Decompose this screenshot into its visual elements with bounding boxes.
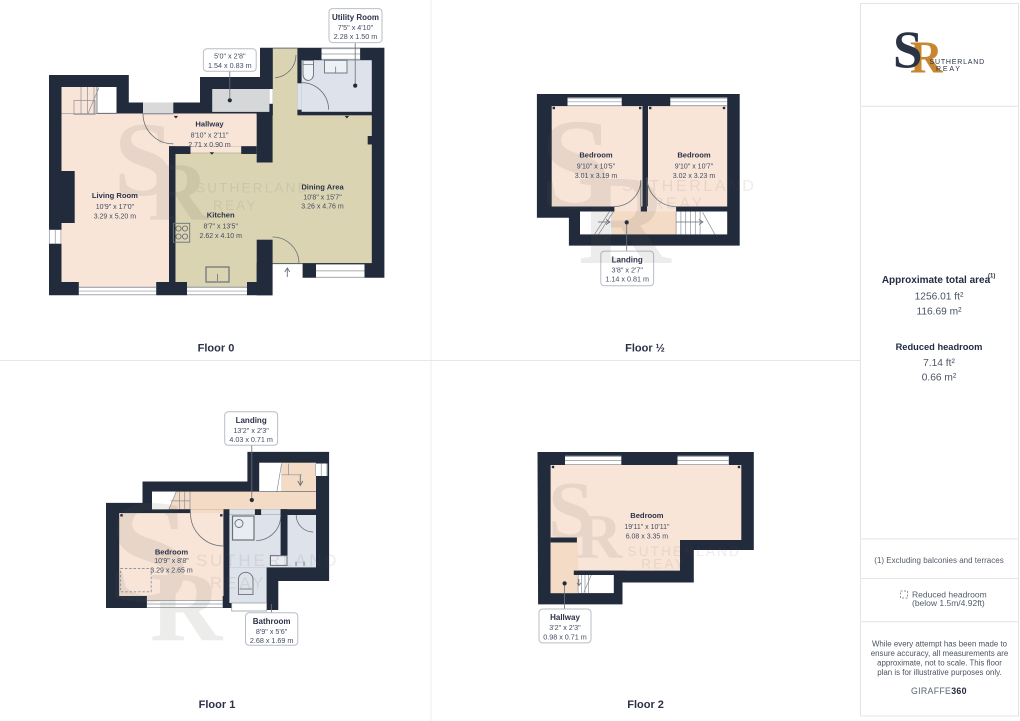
svg-text:8'9" x 5'6": 8'9" x 5'6" <box>256 627 288 636</box>
svg-text:approximate, not to scale. Thi: approximate, not to scale. This floor <box>877 659 1002 668</box>
svg-text:SUTHERLAND: SUTHERLAND <box>196 551 339 570</box>
svg-text:8'7" x 13'5": 8'7" x 13'5" <box>203 224 238 231</box>
svg-text:0.98 x 0.71 m: 0.98 x 0.71 m <box>543 632 587 641</box>
svg-text:Bedroom: Bedroom <box>677 150 711 159</box>
svg-text:Dining Area: Dining Area <box>301 183 344 192</box>
svg-text:9'10" x 10'7": 9'10" x 10'7" <box>675 164 714 171</box>
svg-text:ensure accuracy, all measureme: ensure accuracy, all measurements are <box>871 649 1009 658</box>
svg-text:5'0" x 2'8": 5'0" x 2'8" <box>214 52 246 61</box>
svg-text:3'2" x 2'3": 3'2" x 2'3" <box>549 623 581 632</box>
svg-text:4.03 x 0.71 m: 4.03 x 0.71 m <box>229 435 273 444</box>
svg-text:Landing: Landing <box>236 416 267 425</box>
svg-text:Bedroom: Bedroom <box>630 511 664 520</box>
svg-text:116.69 m²: 116.69 m² <box>916 307 962 318</box>
svg-text:3.02 x 3.23 m: 3.02 x 3.23 m <box>673 173 716 180</box>
svg-text:Floor ½: Floor ½ <box>625 343 665 355</box>
svg-text:3.26 x 4.76 m: 3.26 x 4.76 m <box>301 204 344 211</box>
svg-text:Kitchen: Kitchen <box>207 210 235 219</box>
svg-text:9'10" x 10'5": 9'10" x 10'5" <box>577 164 616 171</box>
svg-text:S: S <box>893 22 922 80</box>
svg-text:Reduced headroom: Reduced headroom <box>896 342 983 352</box>
svg-text:REAY: REAY <box>936 66 962 73</box>
svg-text:Living Room: Living Room <box>92 191 138 200</box>
svg-text:(1) Excluding balconies and te: (1) Excluding balconies and terraces <box>874 556 1003 565</box>
svg-text:(below 1.5m/4.92ft): (below 1.5m/4.92ft) <box>912 598 985 608</box>
svg-text:13'2" x 2'3": 13'2" x 2'3" <box>233 426 269 435</box>
svg-text:Floor 0: Floor 0 <box>198 343 235 355</box>
svg-text:SUTHERLAND: SUTHERLAND <box>196 181 310 196</box>
svg-text:REAY: REAY <box>652 196 705 213</box>
svg-text:2.68 x 1.69 m: 2.68 x 1.69 m <box>250 636 294 645</box>
svg-text:6.08 x 3.35 m: 6.08 x 3.35 m <box>626 534 669 541</box>
svg-text:Hallway: Hallway <box>195 119 224 128</box>
svg-text:Floor 1: Floor 1 <box>199 699 236 711</box>
svg-text:1256.01 ft²: 1256.01 ft² <box>915 292 964 303</box>
svg-text:2.71 x 0.90 m: 2.71 x 0.90 m <box>188 142 231 149</box>
svg-text:10'9" x 8'8": 10'9" x 8'8" <box>154 558 189 565</box>
svg-text:19'11" x 10'11": 19'11" x 10'11" <box>624 524 670 531</box>
svg-text:GIRAFFE360: GIRAFFE360 <box>911 686 967 696</box>
svg-text:2.62 x 4.10 m: 2.62 x 4.10 m <box>199 233 242 240</box>
svg-text:Utility Room: Utility Room <box>332 13 379 22</box>
svg-text:(1): (1) <box>988 274 995 280</box>
svg-text:Hallway: Hallway <box>550 613 580 622</box>
svg-text:0.66 m²: 0.66 m² <box>922 373 957 384</box>
svg-text:Bedroom: Bedroom <box>579 150 613 159</box>
svg-text:7.14 ft²: 7.14 ft² <box>923 358 955 369</box>
svg-text:Floor 2: Floor 2 <box>627 699 664 711</box>
svg-text:REAY: REAY <box>210 574 266 593</box>
svg-text:Approximate total area: Approximate total area <box>882 275 991 286</box>
svg-text:REAY: REAY <box>641 557 686 572</box>
svg-text:8'10" x 2'11": 8'10" x 2'11" <box>191 133 229 140</box>
svg-text:SUTHERLAND: SUTHERLAND <box>622 178 756 195</box>
svg-text:2.28 x 1.50 m: 2.28 x 1.50 m <box>334 32 378 41</box>
svg-text:7'5" x 4'10": 7'5" x 4'10" <box>338 23 374 32</box>
svg-text:Bathroom: Bathroom <box>253 617 291 626</box>
svg-text:3.29 x 2.65 m: 3.29 x 2.65 m <box>150 567 193 574</box>
svg-text:10'8" x 15'7": 10'8" x 15'7" <box>303 195 342 202</box>
svg-text:While every attempt has been m: While every attempt has been made to <box>872 640 1008 649</box>
svg-text:Bedroom: Bedroom <box>155 547 189 556</box>
svg-text:3.29 x 5.20 m: 3.29 x 5.20 m <box>94 213 137 220</box>
svg-text:10'9" x 17'0": 10'9" x 17'0" <box>96 204 135 211</box>
svg-text:plan is for illustrative purpo: plan is for illustrative purposes only. <box>877 668 1001 677</box>
svg-text:R: R <box>576 501 623 572</box>
svg-text:1.54 x 0.83 m: 1.54 x 0.83 m <box>208 61 252 70</box>
svg-text:3.01 x 3.19 m: 3.01 x 3.19 m <box>575 173 618 180</box>
